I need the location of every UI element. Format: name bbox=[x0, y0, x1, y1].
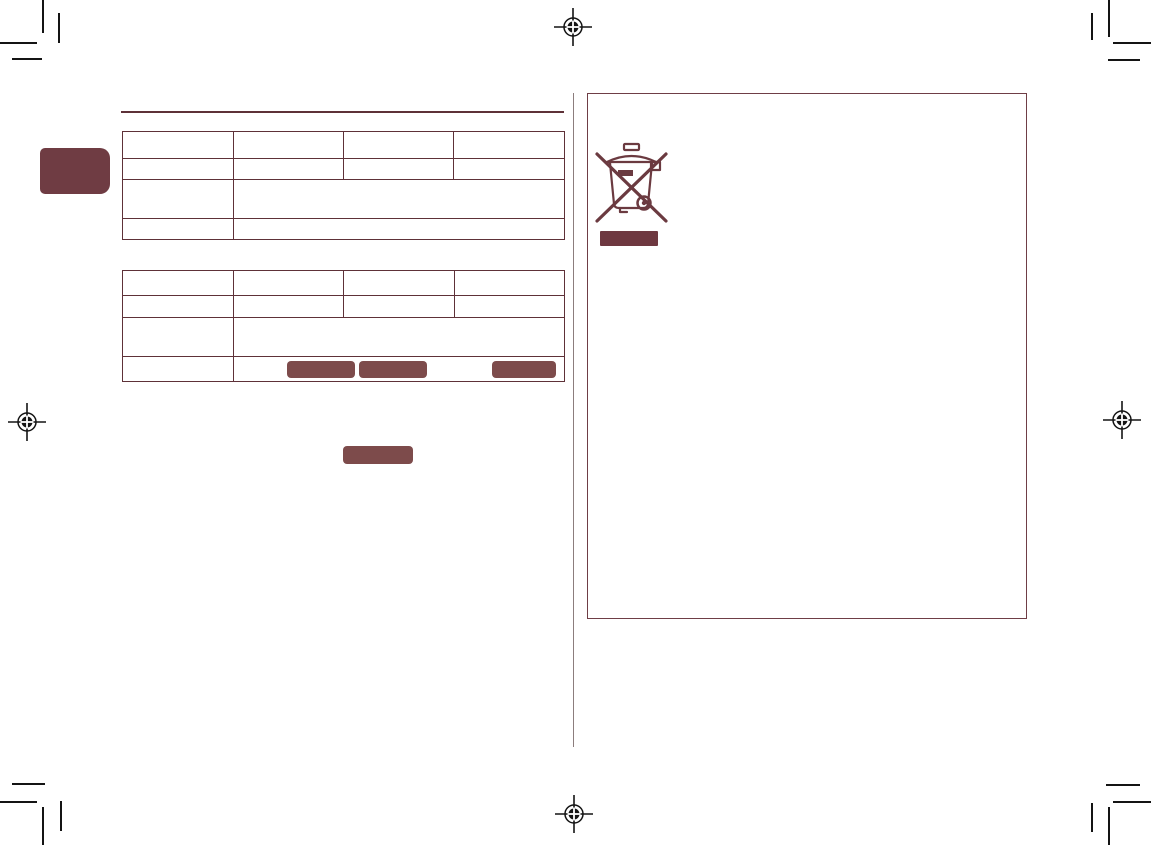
crop-mark bbox=[58, 13, 60, 43]
crop-mark bbox=[1091, 803, 1093, 832]
weee-crossed-out-wheelie-bin-icon bbox=[594, 141, 670, 225]
table-column-divider bbox=[233, 271, 234, 381]
table-row-divider bbox=[123, 356, 564, 357]
redacted-block bbox=[343, 446, 413, 464]
redacted-block bbox=[492, 361, 556, 378]
table-column-divider bbox=[343, 132, 344, 179]
column-divider-line bbox=[573, 93, 574, 747]
disposal-info-box bbox=[587, 93, 1027, 619]
crop-mark bbox=[1113, 801, 1151, 803]
crop-mark bbox=[42, 807, 44, 845]
registration-mark-icon bbox=[7, 402, 47, 442]
crop-mark bbox=[1091, 13, 1093, 40]
table-column-divider bbox=[233, 132, 234, 239]
table-column-divider bbox=[453, 132, 454, 179]
registration-mark-icon bbox=[1102, 400, 1142, 440]
redacted-block bbox=[359, 361, 427, 378]
spec-table-2 bbox=[122, 270, 565, 382]
crop-mark bbox=[1108, 0, 1110, 37]
table-column-divider bbox=[343, 271, 344, 317]
crop-mark bbox=[0, 42, 37, 44]
crop-mark bbox=[1108, 59, 1140, 61]
crop-mark bbox=[12, 783, 45, 785]
page-edge-tab bbox=[40, 148, 110, 194]
document-page bbox=[0, 0, 1151, 845]
crop-mark bbox=[0, 801, 37, 803]
redacted-block bbox=[287, 361, 355, 378]
crop-mark bbox=[60, 801, 62, 831]
section-rule bbox=[121, 111, 564, 113]
crop-mark bbox=[12, 58, 42, 60]
crop-mark bbox=[1106, 784, 1140, 786]
weee-black-bar bbox=[600, 231, 658, 246]
registration-mark-icon bbox=[553, 7, 593, 47]
table-column-divider bbox=[454, 271, 455, 317]
crop-mark bbox=[1108, 807, 1110, 845]
registration-mark-icon bbox=[554, 794, 594, 834]
crop-mark bbox=[42, 0, 44, 33]
table-row-divider bbox=[123, 317, 564, 318]
table-row-divider bbox=[123, 179, 564, 180]
table-row-divider bbox=[123, 218, 564, 219]
spec-table-1 bbox=[122, 131, 565, 240]
crop-mark bbox=[1113, 42, 1151, 44]
